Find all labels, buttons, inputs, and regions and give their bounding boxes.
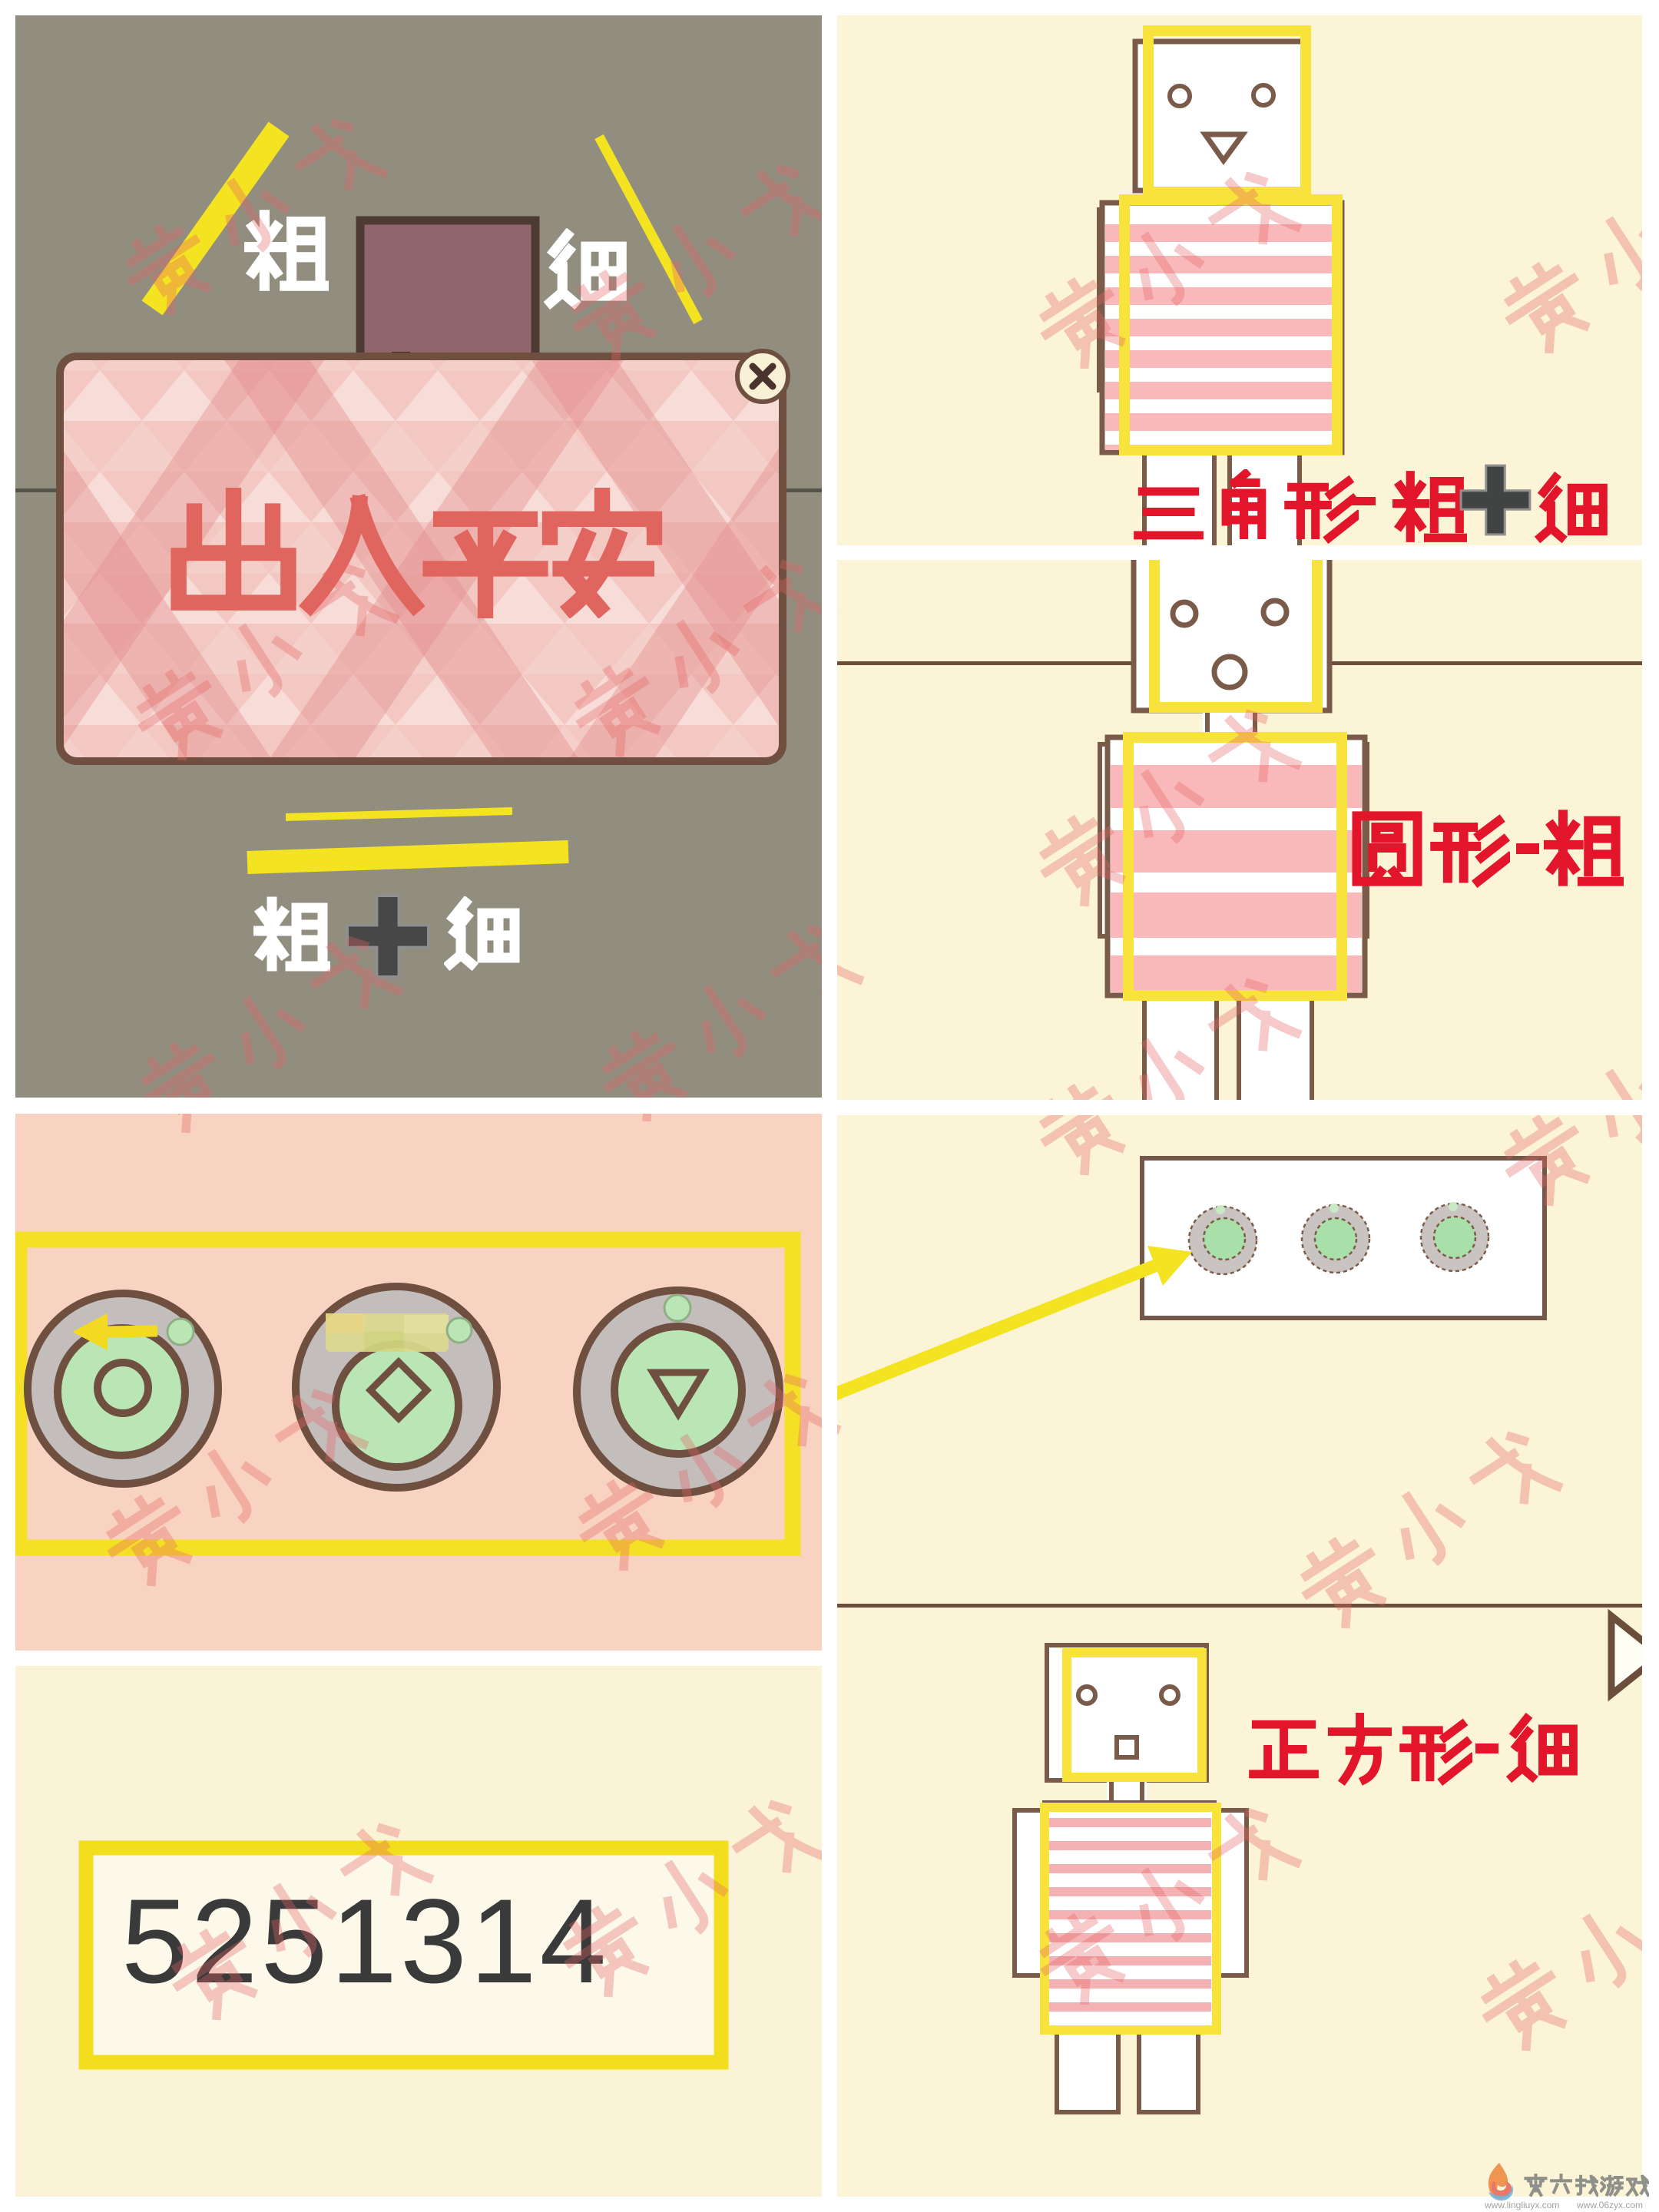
svg-text:www.06zyx.com: www.06zyx.com [1576,2200,1643,2210]
svg-text:www.lingliuyx.com: www.lingliuyx.com [1484,2200,1559,2210]
